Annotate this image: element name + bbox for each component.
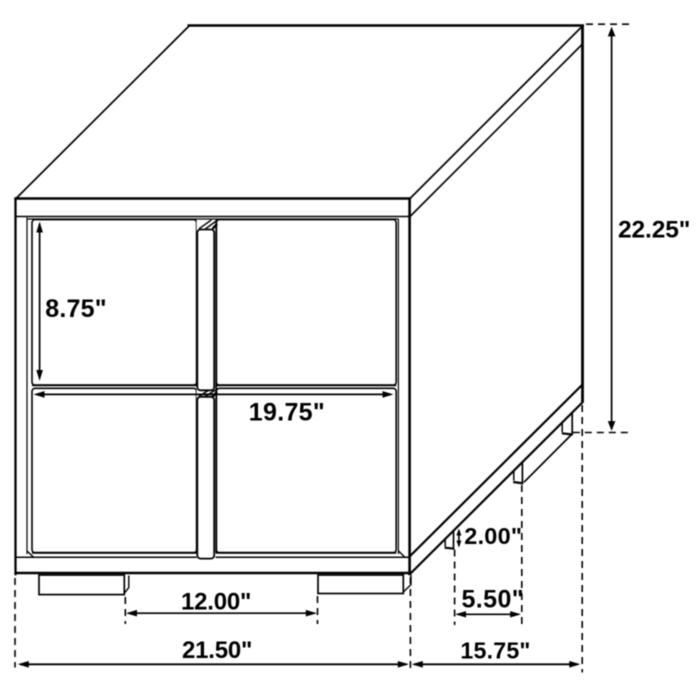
svg-text:5.50": 5.50" <box>462 585 525 613</box>
svg-text:12.00": 12.00" <box>181 589 251 616</box>
svg-text:2.00": 2.00" <box>464 523 522 549</box>
svg-text:19.75": 19.75" <box>249 398 325 426</box>
svg-text:15.75": 15.75" <box>460 637 530 663</box>
svg-text:21.50": 21.50" <box>182 637 252 664</box>
svg-text:8.75": 8.75" <box>45 295 107 323</box>
svg-text:22.25": 22.25" <box>618 216 690 243</box>
